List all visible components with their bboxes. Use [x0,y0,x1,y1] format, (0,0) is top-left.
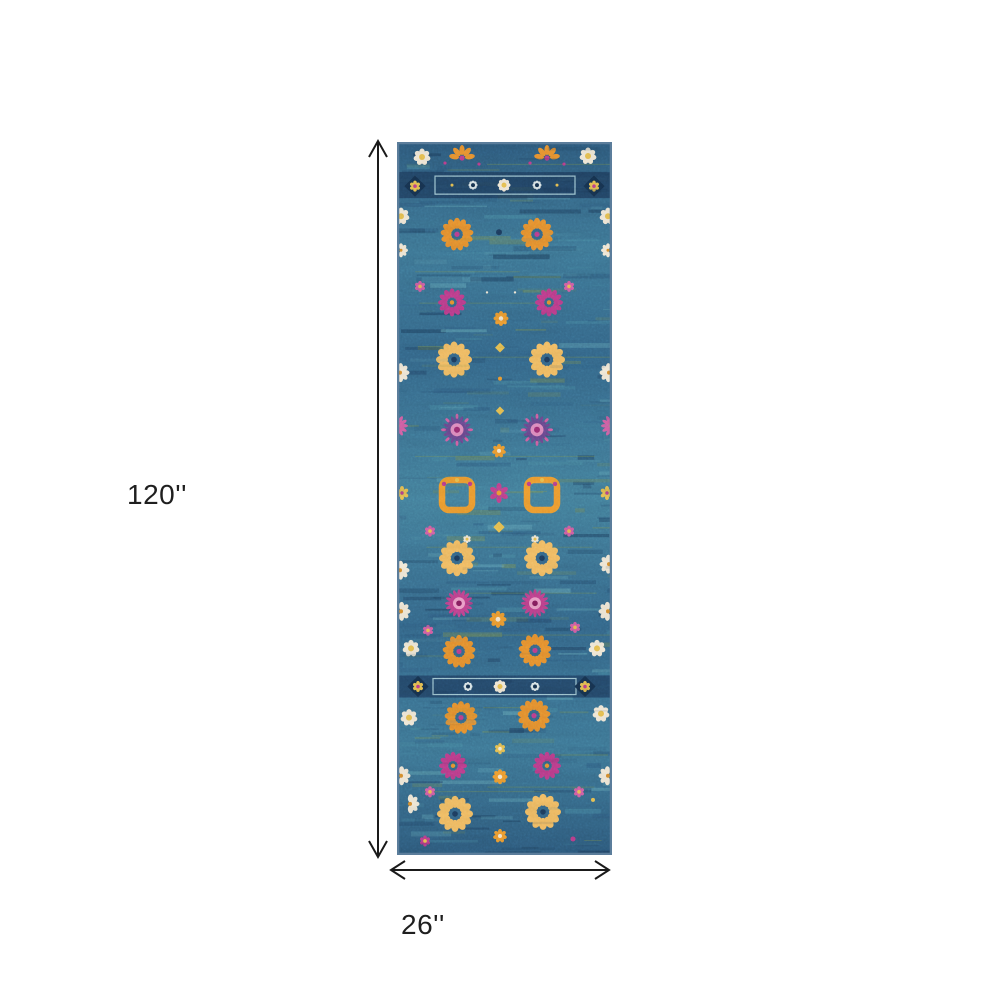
product-dimension-diagram: 120'' 26'' [0,0,1000,1000]
height-dimension-arrow [366,136,392,862]
height-dimension-label: 120'' [127,479,187,511]
width-dimension-arrow [387,858,613,882]
width-dimension-label: 26'' [401,909,445,941]
rug-image [397,142,612,855]
